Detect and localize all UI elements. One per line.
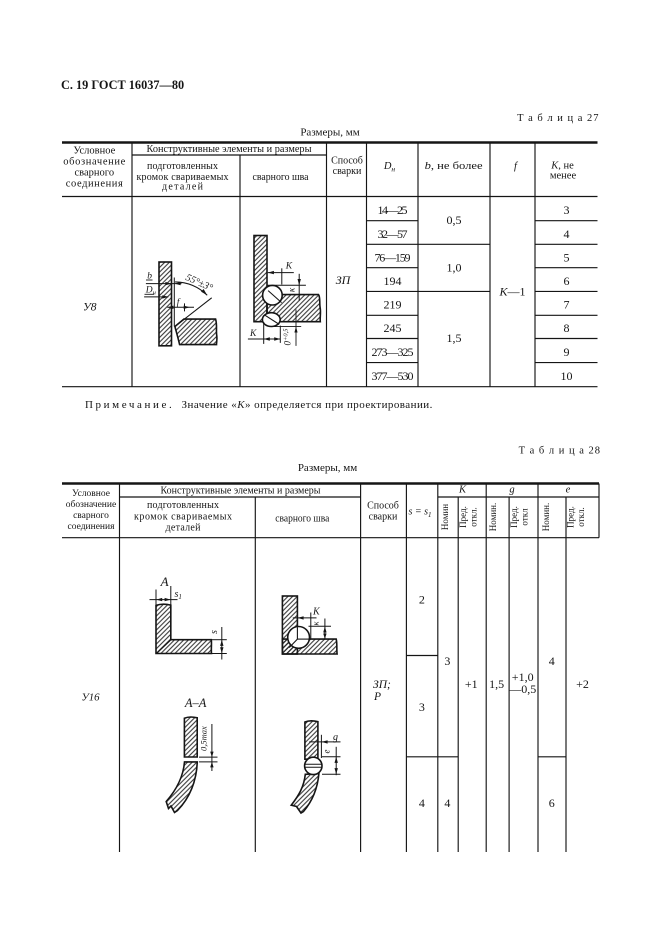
- svg-text:соединения: соединения: [66, 179, 123, 190]
- svg-text:194: 194: [384, 274, 402, 288]
- svg-text:0,5: 0,5: [447, 213, 462, 227]
- svg-text:76—159: 76—159: [375, 250, 411, 264]
- svg-text:К: К: [249, 329, 257, 339]
- svg-text:К: К: [458, 484, 467, 495]
- svg-text:6: 6: [549, 796, 555, 810]
- svg-text:+2: +2: [576, 677, 589, 691]
- svg-text:Номин: Номин: [440, 504, 450, 530]
- svg-text:Т а б л и ц а 27: Т а б л и ц а 27: [517, 113, 599, 124]
- svg-text:У16: У16: [82, 691, 101, 703]
- svg-text:4: 4: [444, 796, 450, 810]
- svg-text:Размеры, мм: Размеры, мм: [298, 462, 357, 474]
- svg-text:32—57: 32—57: [378, 227, 408, 241]
- svg-text:s: s: [209, 630, 220, 634]
- svg-text:сварного шва: сварного шва: [253, 172, 310, 183]
- svg-text:откл.: откл.: [469, 507, 479, 526]
- svg-text:Т а б л и ц а 28: Т а б л и ц а 28: [519, 446, 601, 457]
- svg-text:С. 19 ГОСТ 16037—80: С. 19 ГОСТ 16037—80: [61, 78, 184, 92]
- svg-text:b, не более: b, не более: [425, 161, 483, 172]
- svg-text:5: 5: [564, 250, 570, 264]
- svg-text:Конструктивные элементы и р: Конструктивные элементы и размеры: [147, 144, 312, 155]
- svg-text:0,5max: 0,5max: [199, 726, 209, 751]
- svg-text:откл: откл: [520, 508, 530, 526]
- svg-text:1,5: 1,5: [447, 331, 462, 345]
- svg-text:Номин.: Номин.: [541, 503, 551, 531]
- svg-text:6: 6: [564, 274, 570, 288]
- svg-text:Пред.: Пред.: [509, 506, 519, 528]
- svg-text:подготовленных: подготовленных: [147, 161, 218, 172]
- svg-text:А–А: А–А: [184, 696, 207, 710]
- svg-text:е: е: [322, 750, 332, 754]
- svg-text:деталей: деталей: [162, 182, 204, 193]
- svg-text:g: g: [509, 484, 514, 495]
- svg-text:8: 8: [564, 321, 570, 335]
- svg-text:е: е: [566, 484, 571, 495]
- svg-text:Пред.: Пред.: [566, 506, 576, 528]
- svg-text:сварного: сварного: [75, 167, 115, 178]
- svg-text:деталей: деталей: [166, 523, 202, 534]
- svg-text:10: 10: [561, 369, 573, 383]
- svg-text:2: 2: [419, 592, 425, 606]
- svg-text:4: 4: [419, 796, 425, 810]
- svg-text:9: 9: [564, 345, 570, 359]
- svg-text:1,5: 1,5: [489, 677, 504, 691]
- svg-text:сварного: сварного: [73, 511, 109, 521]
- svg-text:4: 4: [549, 654, 555, 668]
- svg-text:Конструктивные элементы и р: Конструктивные элементы и размеры: [161, 486, 321, 497]
- svg-text:—0,5: —0,5: [508, 682, 536, 696]
- svg-text:Размеры, мм: Размеры, мм: [300, 127, 359, 139]
- svg-text:ЗП;: ЗП;: [373, 679, 391, 691]
- svg-text:Условное: Условное: [72, 489, 110, 499]
- svg-text:Р: Р: [373, 691, 381, 703]
- svg-text:сварного шва: сварного шва: [275, 514, 330, 525]
- svg-text:g: g: [333, 732, 338, 743]
- svg-text:Условное: Условное: [73, 145, 115, 156]
- svg-text:К: К: [285, 262, 293, 272]
- svg-text:менее: менее: [550, 170, 577, 181]
- svg-text:4: 4: [564, 227, 570, 241]
- svg-text:219: 219: [384, 298, 402, 312]
- svg-text:Способ: Способ: [367, 501, 399, 512]
- svg-text:1,0: 1,0: [447, 260, 462, 274]
- svg-text:сварки: сварки: [369, 512, 398, 523]
- svg-text:обозначение: обозначение: [63, 156, 125, 167]
- svg-text:3: 3: [564, 203, 570, 217]
- svg-text:Номин.: Номин.: [488, 503, 498, 531]
- svg-text:7: 7: [564, 298, 570, 312]
- svg-text:273—325: 273—325: [372, 345, 414, 359]
- svg-text:откл.: откл.: [576, 507, 586, 526]
- svg-text:кромок свариваемых: кромок свариваемых: [134, 512, 232, 523]
- svg-text:377—530: 377—530: [372, 369, 414, 383]
- svg-text:3: 3: [419, 700, 425, 714]
- svg-text:Примечание. Значение «К» опред: Примечание. Значение «К» определяется пр…: [85, 399, 433, 411]
- svg-text:Пред.: Пред.: [458, 506, 468, 528]
- svg-text:У8: У8: [83, 302, 97, 314]
- svg-text:14—25: 14—25: [378, 203, 408, 217]
- svg-text:ЗП: ЗП: [336, 273, 352, 287]
- svg-text:соединения: соединения: [68, 522, 116, 532]
- svg-text:3: 3: [444, 654, 450, 668]
- svg-text:К—1: К—1: [499, 284, 526, 298]
- svg-text:сварки: сварки: [333, 166, 362, 177]
- svg-text:245: 245: [384, 321, 402, 335]
- svg-text:подготовленных: подготовленных: [147, 500, 219, 511]
- svg-text:+1: +1: [465, 677, 478, 691]
- svg-text:А: А: [160, 574, 169, 589]
- svg-text:обозначение: обозначение: [66, 499, 116, 510]
